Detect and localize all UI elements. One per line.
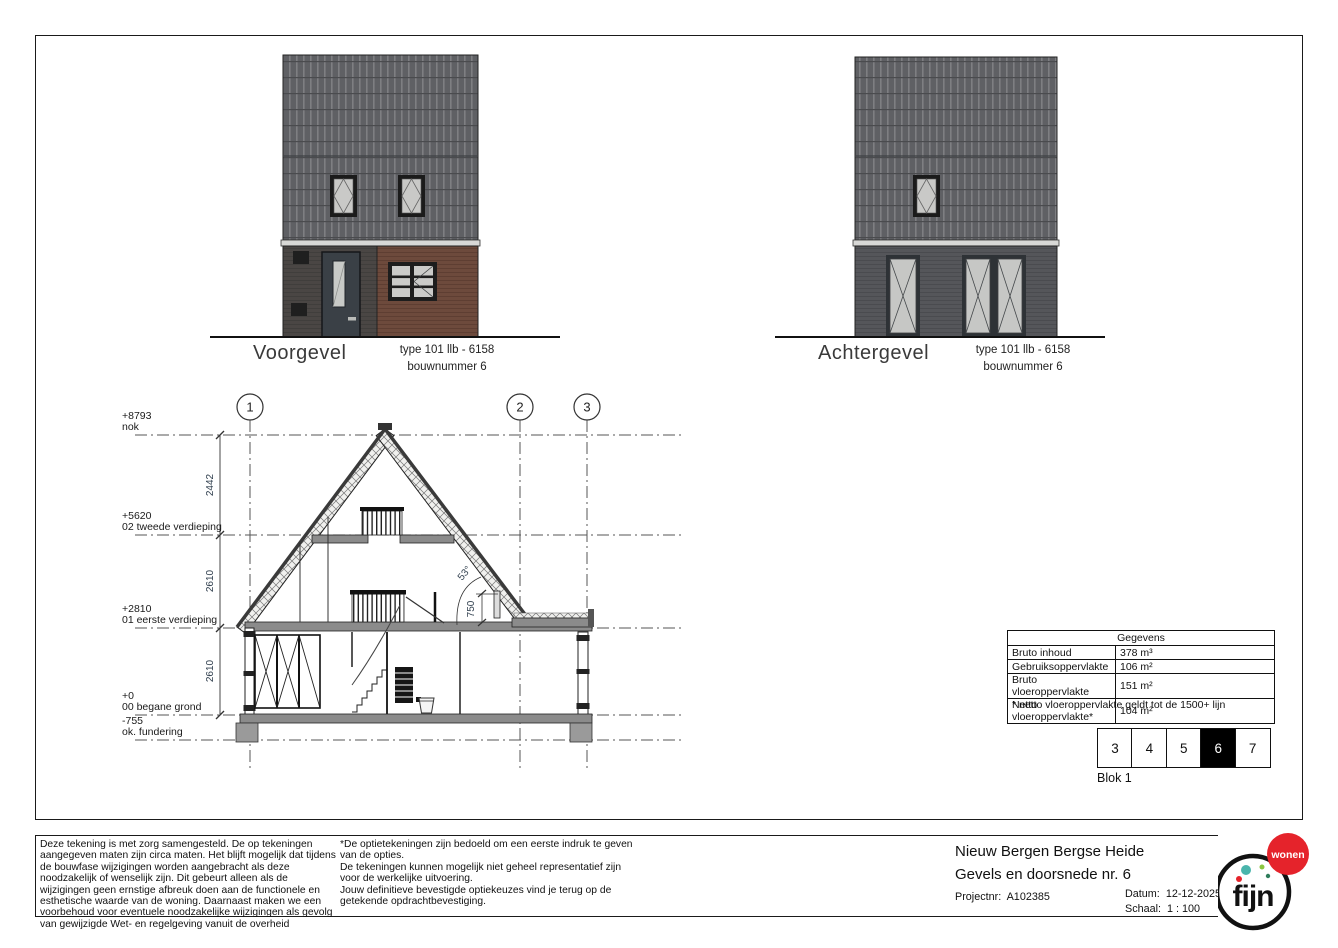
section-right-wall xyxy=(577,632,590,715)
level-tweede-verdieping: +562002 tweede verdieping xyxy=(122,511,222,533)
grid-bubble-2: 2 xyxy=(507,394,533,420)
front-vent-top xyxy=(293,251,309,264)
level-nok: +8793nok xyxy=(122,411,152,433)
project-title: Nieuw Bergen Bergse Heide xyxy=(955,843,1144,860)
front-skylight-right xyxy=(398,175,425,217)
options-note-text: *De optietekeningen zijn bedoeld om een … xyxy=(340,839,640,907)
disclaimer-text: Deze tekening is met zorg samengesteld. … xyxy=(40,839,338,930)
level-begane-grond: +000 begane grond xyxy=(122,691,201,713)
logo-badge-text: wonen xyxy=(1270,849,1304,861)
rear-roof xyxy=(855,57,1057,240)
front-vent-bottom xyxy=(291,303,307,316)
table-row: Bruto vloeroppervlakte 151 m² xyxy=(1008,674,1275,699)
logo-dot-green xyxy=(1260,865,1265,870)
rear-skylight xyxy=(913,175,940,217)
table-row: Bruto inhoud 378 m³ xyxy=(1008,646,1275,660)
grid-bubble-3: 3 xyxy=(574,394,600,420)
section-left-wall xyxy=(244,628,256,715)
logo-dot-teal xyxy=(1241,865,1251,875)
block-cell-7: 7 xyxy=(1235,728,1271,768)
block-strip-label: Blok 1 xyxy=(1097,771,1132,785)
logo-dot-darkgreen xyxy=(1266,874,1270,878)
toilet xyxy=(419,698,434,713)
front-elevation-drawing xyxy=(205,45,565,345)
scale: Schaal: 1 : 100 xyxy=(1125,903,1200,915)
foundations xyxy=(236,723,592,742)
block-cell-4: 4 xyxy=(1131,728,1167,768)
block-cell-6-active: 6 xyxy=(1200,728,1236,768)
rear-door xyxy=(886,255,920,337)
front-roof xyxy=(283,55,478,240)
ground-slab xyxy=(240,714,592,723)
svg-text:2610: 2610 xyxy=(205,569,216,592)
svg-text:3: 3 xyxy=(583,400,590,415)
svg-text:2442: 2442 xyxy=(205,473,216,496)
wardrobe xyxy=(255,635,320,708)
first-floor-railing xyxy=(350,590,444,623)
front-elevation-type: type 101 llb - 6158 xyxy=(362,344,532,356)
knee-wall-dimension: 750 xyxy=(466,590,498,626)
gegevens-footnote: * netto vloeroppervlakte geldt tot de 15… xyxy=(1012,699,1225,711)
rear-gutter xyxy=(853,240,1059,246)
radiator xyxy=(395,667,421,703)
height-dimension-chain: 2442 2610 2610 xyxy=(205,431,224,719)
front-window xyxy=(388,262,437,301)
block-cell-3: 3 xyxy=(1097,728,1133,768)
rear-elevation-type: type 101 llb - 6158 xyxy=(938,344,1108,356)
project-number: Projectnr: A102385 xyxy=(955,891,1050,903)
svg-text:1: 1 xyxy=(246,400,253,415)
svg-text:2: 2 xyxy=(516,400,523,415)
svg-text:2610: 2610 xyxy=(205,659,216,682)
grid-bubble-1: 1 xyxy=(237,394,263,420)
knee-wall xyxy=(494,591,500,618)
rear-double-doors xyxy=(962,255,1026,337)
rear-elevation-title: Achtergevel xyxy=(818,342,929,365)
level-fundering: -755ok. fundering xyxy=(122,716,183,738)
level-eerste-verdieping: +281001 eerste verdieping xyxy=(122,604,217,626)
svg-text:53°: 53° xyxy=(456,564,474,583)
block-number-strip: 3 4 5 6 7 xyxy=(1097,728,1271,768)
drawing-title: Gevels en doorsnede nr. 6 xyxy=(955,866,1131,883)
rear-elevation-bouwnummer: bouwnummer 6 xyxy=(938,361,1108,373)
front-door xyxy=(322,252,360,337)
front-elevation-title: Voorgevel xyxy=(253,342,346,365)
front-elevation-bouwnummer: bouwnummer 6 xyxy=(362,361,532,373)
logo-text: fijn xyxy=(1233,880,1274,913)
front-gutter xyxy=(281,240,480,246)
svg-text:750: 750 xyxy=(466,600,477,617)
gegevens-table-title: Gegevens xyxy=(1008,631,1275,646)
cross-section-drawing: 1 2 3 xyxy=(100,385,700,775)
front-skylight-left xyxy=(330,175,357,217)
fijn-wonen-logo: wonen fijn xyxy=(1218,830,1313,942)
date: Datum: 12-12-2025 xyxy=(1125,888,1221,900)
rear-wall xyxy=(855,246,1057,337)
drawing-sheet: Voorgevel type 101 llb - 6158 bouwnummer… xyxy=(0,0,1338,948)
block-cell-5: 5 xyxy=(1166,728,1202,768)
table-row: Gebruiksoppervlakte 106 m² xyxy=(1008,660,1275,674)
rear-elevation-drawing xyxy=(775,45,1135,345)
